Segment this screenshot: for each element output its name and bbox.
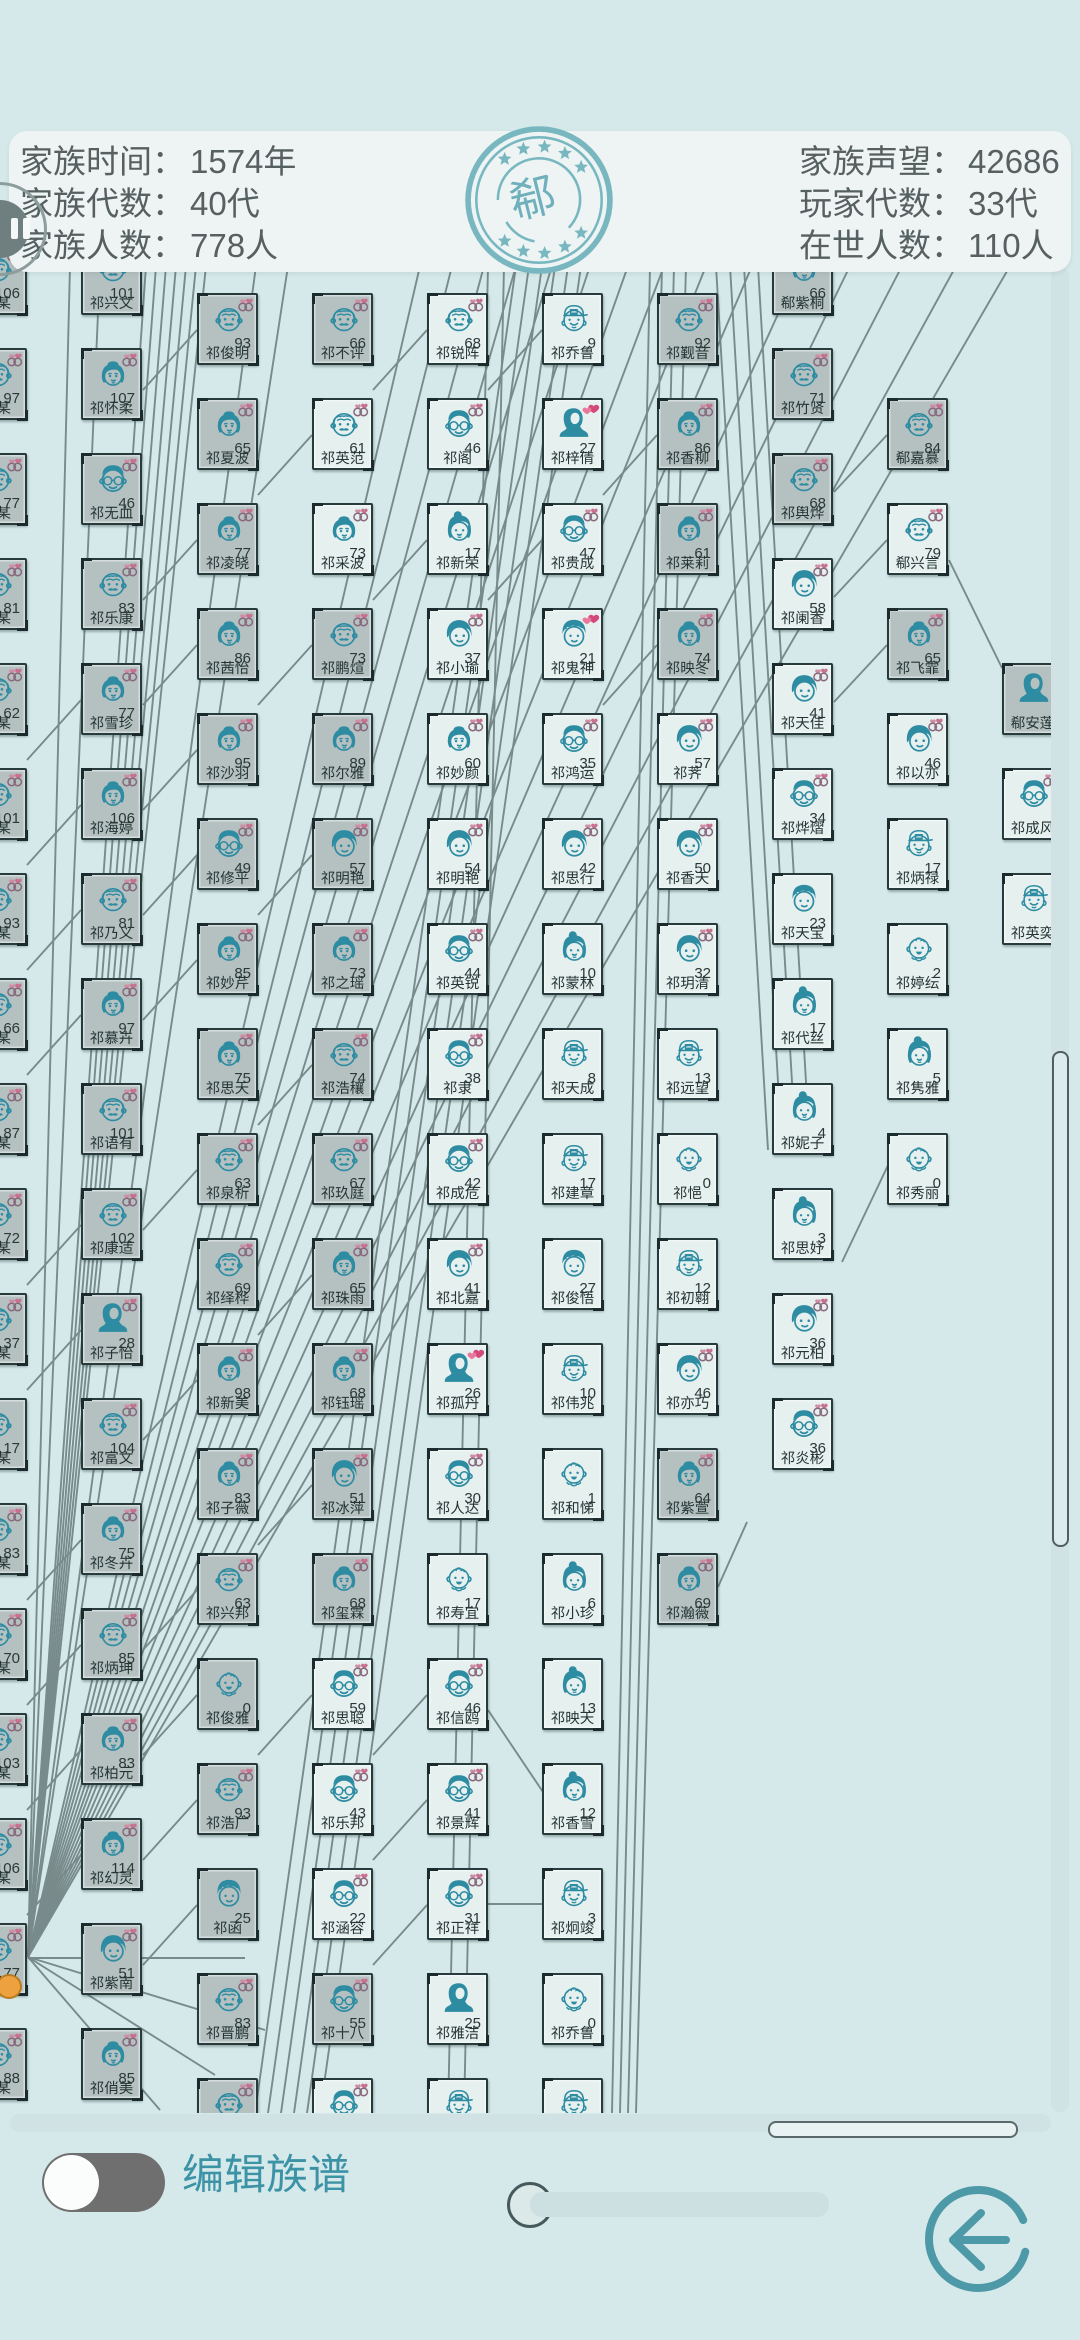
svg-text:郗: 郗 bbox=[502, 159, 562, 233]
